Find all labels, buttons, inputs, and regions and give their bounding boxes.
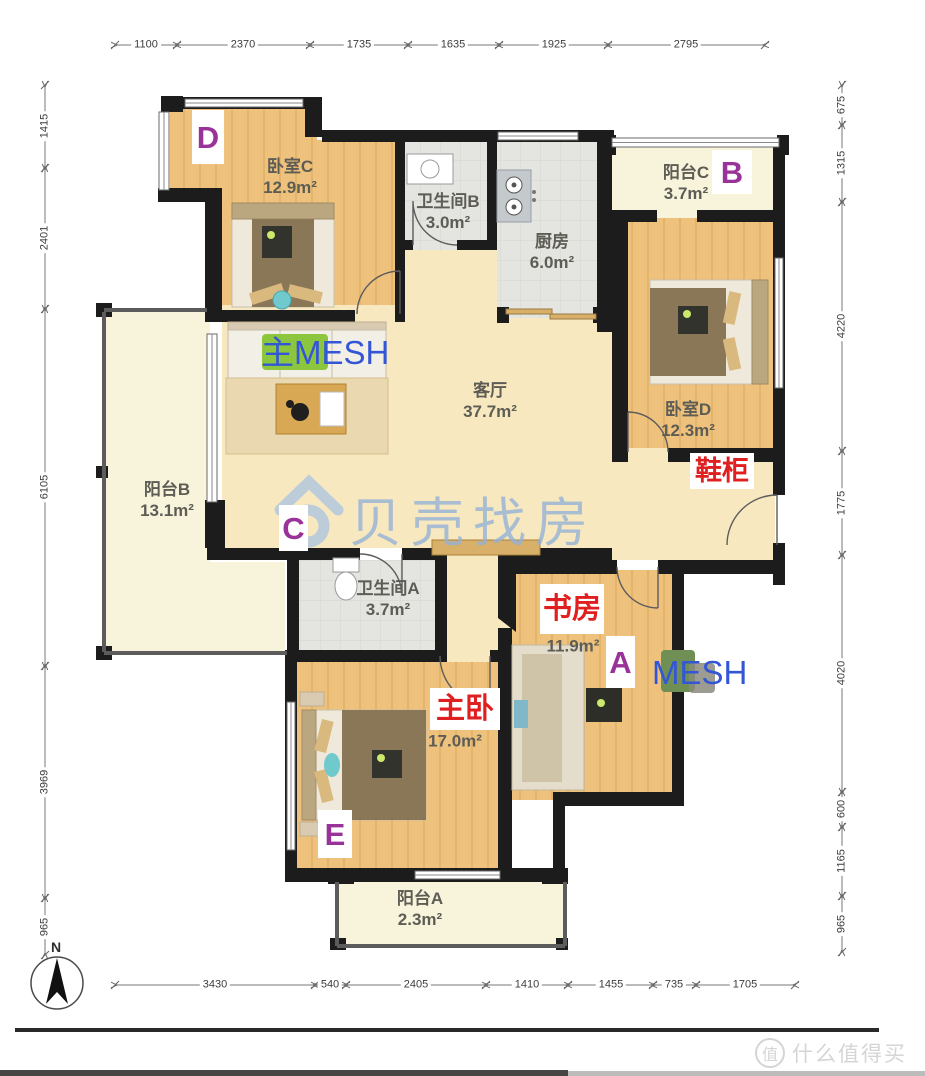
room-name: 卫生间B [416,191,479,212]
dim-left-3969: 3969 [40,767,51,797]
dim-right-675: 675 [837,93,848,117]
mesh-node-label: MESH [652,656,747,689]
room-name: 卫生间A [356,578,419,599]
mesh-point-B: B [712,150,752,194]
smzdm-text: 什么值得买 [792,1038,907,1068]
mesh-main-label: 主MESH [261,336,389,369]
room-name: 卧室D [661,399,715,420]
dim-bottom-2405: 2405 [401,980,431,991]
north-arrow [31,957,83,1009]
room-name: 客厅 [463,380,517,401]
master-red-label: 主卧 [430,688,500,730]
room-name: 卧室C [263,156,317,177]
bedroomD-bed [650,280,768,384]
room-area: 12.3m² [661,420,715,441]
dim-left-1415: 1415 [40,111,51,141]
room-name: 阳台C [663,162,709,183]
dim-right-1165: 1165 [837,846,848,876]
dim-left-6105: 6105 [40,472,51,502]
room-name: 阳台A [397,888,443,909]
kitchen-stove [497,170,536,222]
dim-top-2370: 2370 [228,40,258,51]
room-label-balconyA: 阳台A 2.3m² [397,888,443,931]
mesh-point-D: D [192,110,224,164]
dim-right-600: 600 [837,797,848,821]
room-name: 厨房 [530,231,574,252]
kitchen-floor [497,140,607,318]
bedroomC-bed [232,203,334,309]
room-area: 13.1m² [140,500,194,521]
bathA-toilet [333,558,359,600]
room-area: 12.9m² [263,177,317,198]
dim-right-4020: 4020 [837,658,848,688]
dim-top-1635: 1635 [438,40,468,51]
balconyA-floor [337,880,565,948]
room-area: 2.3m² [397,909,443,930]
room-area-master: 17.0m² [428,730,482,751]
dim-left-2401: 2401 [40,223,51,253]
dim-left-965: 965 [40,915,51,939]
room-area: 3.7m² [356,599,419,620]
mesh-point-C: C [279,505,308,551]
dim-bottom-3430: 3430 [200,980,230,991]
room-label-bedroomC: 卧室C 12.9m² [263,156,317,199]
separator-rule [15,1028,879,1032]
room-label-balconyC: 阳台C 3.7m² [663,162,709,205]
bottom-strip-dark [0,1070,568,1076]
room-area: 17.0m² [428,730,482,751]
room-area: 37.7m² [463,401,517,422]
room-area: 3.7m² [663,183,709,204]
room-label-bathA: 卫生间A 3.7m² [356,578,419,621]
dim-right-965: 965 [837,912,848,936]
dim-top-1735: 1735 [344,40,374,51]
dim-top-1925: 1925 [539,40,569,51]
room-label-balconyB: 阳台B 13.1m² [140,479,194,522]
dim-bottom-1410: 1410 [512,980,542,991]
smzdm-badge-icon: 值 [755,1038,785,1068]
dim-right-1775: 1775 [837,488,848,518]
dim-right-4220: 4220 [837,311,848,341]
floorplan-page: 1100 2370 1735 1635 1925 2795 3430 540 2… [0,0,925,1076]
mesh-point-E: E [318,810,352,858]
bedroomD-door-gap [628,448,668,462]
room-area-study: 11.9m² [547,635,600,656]
dim-bottom-735: 735 [662,980,686,991]
brand-watermark-text: 贝壳找房 [349,481,597,557]
room-name: 阳台B [140,479,194,500]
dim-top-2795: 2795 [671,40,701,51]
bathB-sink [407,154,453,184]
north-label: N [51,939,61,955]
room-label-kitchen: 厨房 6.0m² [530,231,574,274]
dim-bottom-1455: 1455 [596,980,626,991]
room-area: 3.0m² [416,212,479,233]
room-label-bathB: 卫生间B 3.0m² [416,191,479,234]
bottom-strip-light [568,1071,925,1076]
dim-top-1100: 1100 [131,40,161,51]
dim-bottom-1705: 1705 [730,980,760,991]
room-label-living: 客厅 37.7m² [463,380,517,423]
room-label-bedroomD: 卧室D 12.3m² [661,399,715,442]
study-red-label: 书房 [540,584,604,634]
dim-right-1315: 1315 [837,148,848,178]
masterdoor-gap [440,650,490,662]
room-area: 6.0m² [530,252,574,273]
mesh-point-A: A [606,636,635,688]
dim-bottom-540: 540 [318,980,342,991]
shoe-cabinet-label: 鞋柜 [690,453,754,489]
room-area: 11.9m² [547,635,600,656]
smzdm-watermark: 值 什么值得买 [755,1038,907,1068]
